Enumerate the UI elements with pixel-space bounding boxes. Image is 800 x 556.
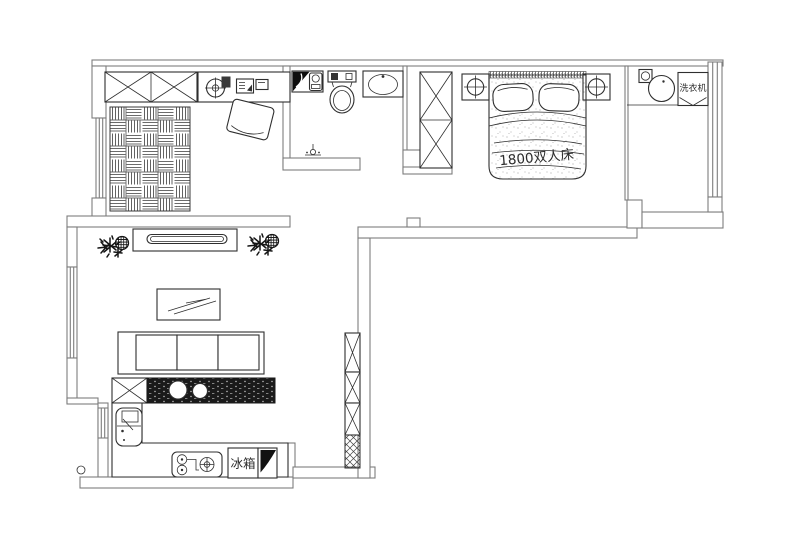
pillow xyxy=(492,83,533,112)
kitchen-sink-icon xyxy=(116,408,142,446)
bedroom: 1800双人床 xyxy=(420,72,610,180)
pillow xyxy=(539,83,580,111)
wall-kitchen-step xyxy=(67,398,98,404)
wall-bath-south xyxy=(283,158,360,170)
tv-cabinet xyxy=(133,229,237,251)
closet xyxy=(105,72,197,102)
sofa xyxy=(118,332,264,374)
wall-corridor-pier xyxy=(407,218,420,227)
floor-plan-page: 1800双人床 洗衣机 xyxy=(0,0,800,556)
wall-bedroom-step xyxy=(627,200,642,228)
wall-balcony-partition xyxy=(625,66,628,200)
washing-machine: 洗衣机 xyxy=(678,73,708,106)
refrigerator-label: 冰箱 xyxy=(230,456,255,471)
window-right xyxy=(708,62,722,197)
toilet-icon xyxy=(328,71,356,113)
gas-stove-icon xyxy=(172,452,222,477)
hatched-cabinet xyxy=(345,435,360,468)
wall-balcony-south xyxy=(642,212,723,228)
window-kitchen-left xyxy=(98,408,108,438)
wall-top xyxy=(92,60,723,66)
wall-right-stub xyxy=(708,197,722,212)
nightstand-right xyxy=(583,74,610,100)
wardrobe xyxy=(420,72,452,168)
wall-bath-east xyxy=(403,66,407,158)
wall-bottom xyxy=(80,477,293,488)
bar-sink-icon xyxy=(169,381,187,399)
bath-sink-icon xyxy=(363,71,403,97)
wall-corridor-south xyxy=(358,227,637,238)
coffee-table xyxy=(157,289,220,320)
wall-living-left-lower xyxy=(67,358,77,403)
tatami-mat xyxy=(110,107,190,211)
bar-sink-icon xyxy=(193,384,208,399)
tall-cabinet-strip xyxy=(345,333,360,468)
floor-plan: 1800双人床 洗衣机 xyxy=(0,0,800,556)
laundry-basin-icon xyxy=(649,76,675,102)
window-tatami-left xyxy=(96,118,106,198)
wall-left-mid xyxy=(92,198,106,217)
wall-living-left-upper xyxy=(67,227,77,267)
double-bed: 1800双人床 xyxy=(489,75,586,179)
corner-cabinet xyxy=(258,448,277,478)
nightstand-left xyxy=(462,74,489,100)
window-living-left xyxy=(67,267,77,358)
refrigerator: 冰箱 xyxy=(228,448,258,478)
tv-icon xyxy=(147,235,227,244)
bar-counter xyxy=(112,378,275,403)
wall-left-upper xyxy=(92,66,106,118)
shower-heater-icon xyxy=(292,71,323,92)
washing-machine-label: 洗衣机 xyxy=(679,82,706,94)
wall-tatami-bottom xyxy=(67,216,290,227)
laundry-fixture-icon xyxy=(639,70,652,83)
